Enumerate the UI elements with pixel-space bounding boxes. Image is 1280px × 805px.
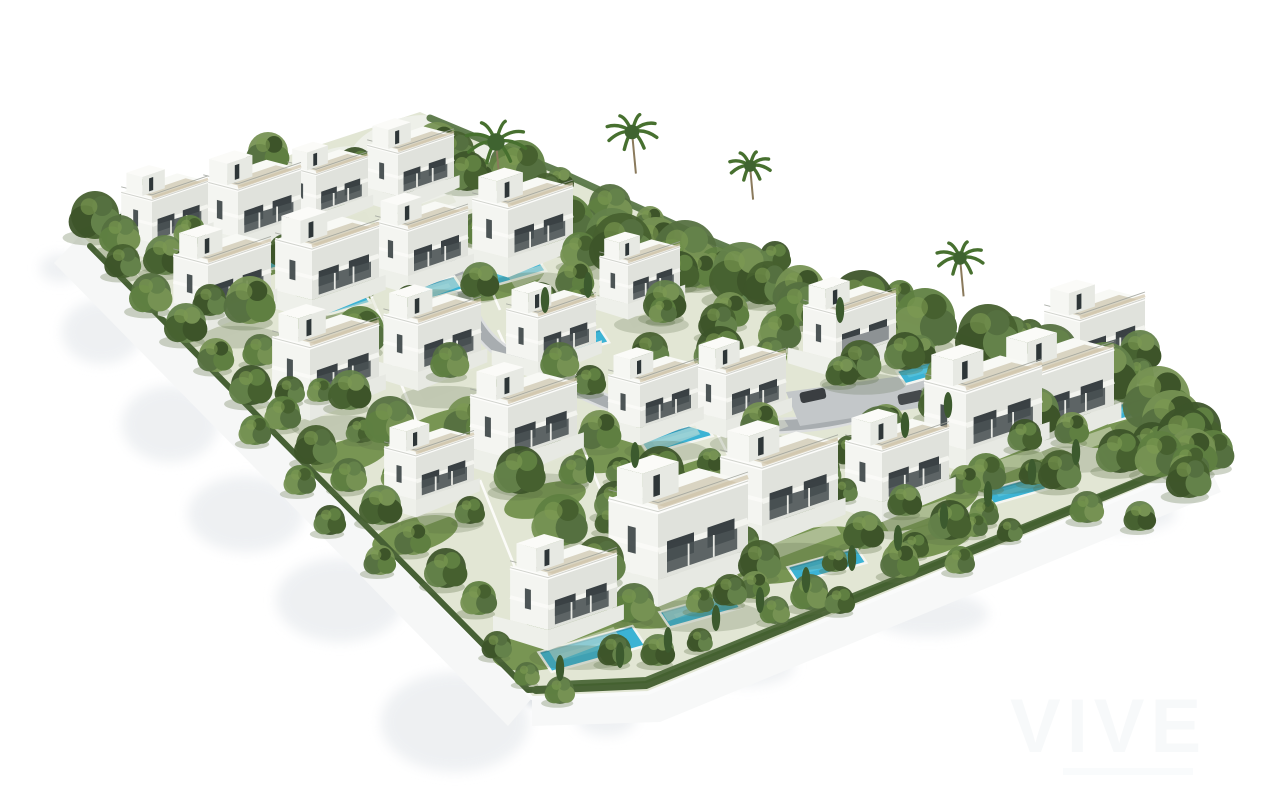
svg-text:VIVE: VIVE bbox=[1010, 684, 1207, 769]
